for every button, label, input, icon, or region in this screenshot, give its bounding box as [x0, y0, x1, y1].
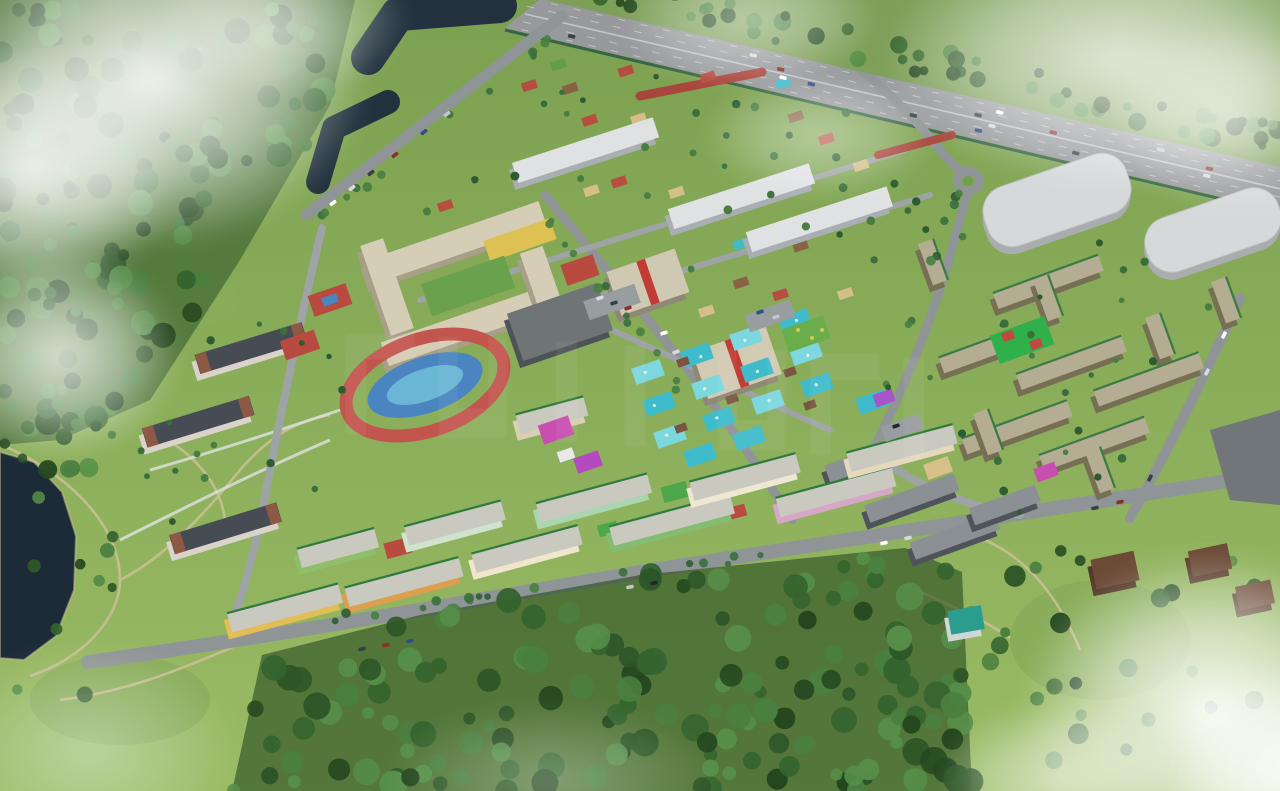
tree [1070, 677, 1083, 690]
tree [280, 327, 288, 335]
tree [463, 713, 475, 725]
tree [306, 54, 326, 74]
tree [798, 611, 817, 630]
tree [898, 55, 908, 65]
tree [299, 340, 305, 346]
tree [890, 36, 908, 54]
tree [725, 625, 752, 652]
tree [1119, 659, 1138, 678]
tree [431, 596, 441, 606]
tree [1157, 101, 1167, 111]
tree [558, 602, 580, 624]
tree [30, 3, 45, 18]
tree [37, 193, 50, 206]
pool-detail [795, 319, 798, 322]
tree [338, 386, 346, 394]
tree [64, 57, 88, 81]
tree [912, 197, 920, 205]
tree [483, 720, 495, 732]
tree [913, 50, 925, 62]
tree [885, 384, 891, 390]
tree [69, 162, 81, 174]
tree [1149, 357, 1157, 365]
scene-canvas [0, 0, 1280, 791]
tree [715, 611, 729, 625]
tree [958, 429, 966, 437]
pool-detail [743, 339, 746, 342]
tree [580, 97, 586, 103]
tree [697, 732, 717, 752]
tree [593, 283, 603, 293]
tree [631, 729, 659, 757]
tree [292, 717, 315, 740]
tree [716, 729, 737, 750]
tree [1030, 561, 1042, 573]
tree [108, 431, 116, 439]
tree [308, 15, 320, 27]
tree [541, 100, 548, 107]
tree [1113, 358, 1118, 363]
tree [867, 216, 876, 225]
tree [730, 552, 739, 561]
tree [1205, 303, 1212, 310]
tree [499, 706, 514, 721]
tree [577, 175, 584, 182]
tree [720, 8, 735, 23]
tree [564, 111, 570, 117]
tree [98, 112, 123, 137]
tree [266, 459, 274, 467]
tree [1046, 678, 1062, 694]
tree [28, 559, 41, 572]
tree [842, 108, 851, 117]
tree [702, 14, 716, 28]
tree [1151, 589, 1170, 608]
tree [169, 518, 176, 525]
tree [36, 206, 47, 217]
tree [28, 288, 42, 302]
tree [903, 768, 927, 791]
tree [166, 420, 172, 426]
tree [991, 637, 1009, 655]
tree [741, 672, 763, 694]
tree [732, 100, 740, 108]
tree [640, 648, 667, 675]
tree [655, 703, 678, 726]
tree [720, 664, 743, 687]
tree [56, 385, 67, 396]
tree [970, 71, 986, 87]
tree [362, 707, 374, 719]
tree [1205, 701, 1218, 714]
tree [994, 457, 1002, 465]
tree [765, 604, 787, 626]
tree [673, 377, 681, 385]
tree [1029, 353, 1035, 359]
tree [128, 190, 154, 216]
tree [955, 190, 963, 198]
tree [775, 656, 789, 670]
tree [826, 591, 841, 606]
tree [100, 543, 115, 558]
tree [972, 56, 981, 65]
tree [423, 207, 431, 215]
tree [21, 421, 35, 435]
tree [528, 47, 537, 56]
tree [584, 764, 607, 787]
tree [779, 756, 800, 777]
tree [1178, 125, 1191, 138]
tree [12, 3, 25, 16]
tree [265, 124, 285, 144]
tree [772, 37, 780, 45]
tree [134, 169, 159, 194]
tree [726, 703, 751, 728]
tree [266, 142, 291, 167]
tree [115, 138, 141, 164]
tree [890, 180, 898, 188]
tree [43, 1, 63, 21]
tree [173, 226, 192, 245]
tree [722, 163, 728, 169]
tree [0, 220, 20, 241]
tree [686, 560, 693, 567]
tree [43, 298, 55, 310]
tree [1027, 331, 1034, 338]
tree [24, 255, 42, 273]
pool-detail [644, 371, 647, 374]
tree [953, 668, 968, 683]
tree [672, 386, 680, 394]
tree [767, 191, 775, 199]
tree [653, 349, 660, 356]
tree [1118, 454, 1127, 463]
tree [521, 605, 546, 630]
tree [60, 460, 78, 478]
tree [83, 35, 94, 46]
tree [64, 372, 81, 389]
tree [257, 321, 262, 326]
tree [1245, 691, 1264, 710]
tree [410, 721, 436, 747]
tree [539, 686, 564, 711]
tree [619, 568, 628, 577]
tree [195, 271, 210, 286]
tree [190, 165, 209, 184]
tree [108, 583, 117, 592]
tree [282, 116, 296, 130]
tree [1120, 743, 1132, 755]
tree [263, 735, 281, 753]
tree [38, 460, 57, 479]
tree [909, 66, 921, 78]
tree [109, 266, 133, 290]
tree [521, 646, 548, 673]
tree [496, 588, 521, 613]
tree [1017, 509, 1022, 514]
tree [281, 751, 303, 773]
tree [105, 392, 124, 411]
tree [362, 182, 372, 192]
tree [1195, 108, 1211, 124]
tree [261, 655, 287, 681]
tree [641, 143, 649, 151]
pool-detail [699, 355, 702, 358]
pool-detail [715, 416, 718, 419]
tree [338, 658, 357, 677]
tree [100, 58, 124, 82]
tree [440, 607, 460, 627]
pool-detail [653, 404, 656, 407]
tree [1034, 68, 1044, 78]
pool-detail [665, 434, 668, 437]
tree [757, 552, 763, 558]
tree [27, 131, 44, 148]
tree [70, 306, 81, 317]
tree [623, 319, 631, 327]
tree [897, 676, 919, 698]
tree [136, 222, 151, 237]
tree [59, 349, 78, 368]
tree [999, 487, 1008, 496]
tree [982, 653, 999, 670]
tree [850, 51, 866, 67]
tree [79, 458, 98, 477]
tree [690, 149, 697, 156]
tree [959, 233, 967, 241]
tree [786, 132, 793, 139]
tree [5, 398, 19, 412]
tree [844, 766, 864, 786]
tree [302, 88, 326, 112]
tree [459, 731, 483, 755]
tree [41, 383, 56, 398]
tree [725, 561, 731, 567]
tree [166, 30, 189, 53]
tree [802, 222, 810, 230]
tree [84, 262, 101, 279]
tree [1119, 297, 1125, 303]
tree [32, 491, 45, 504]
tree [854, 602, 873, 621]
tree [3, 103, 17, 117]
tree [1063, 449, 1069, 455]
tree [12, 684, 22, 694]
tree [343, 194, 350, 201]
tree [836, 231, 842, 237]
tree [940, 692, 966, 718]
tree [386, 617, 406, 637]
tree [937, 563, 954, 580]
tree [821, 670, 840, 689]
tree [926, 256, 936, 266]
tree [1055, 545, 1067, 557]
tree [118, 249, 130, 261]
tree [610, 708, 627, 725]
tree [195, 190, 212, 207]
tree [839, 183, 848, 192]
tree [644, 192, 651, 199]
tree [867, 571, 884, 588]
tree [201, 474, 209, 482]
tree [335, 683, 359, 707]
tree [922, 226, 929, 233]
tree [172, 468, 178, 474]
tree [1074, 103, 1088, 117]
tree [623, 312, 630, 319]
tree [87, 174, 112, 199]
tree [136, 346, 153, 363]
tree [753, 698, 778, 723]
tree [45, 287, 57, 299]
tree [570, 250, 578, 258]
tree [904, 207, 911, 214]
tree [824, 644, 843, 663]
tree [138, 447, 145, 454]
tree [321, 209, 329, 217]
tree [122, 368, 141, 387]
tree [950, 200, 959, 209]
tree [241, 155, 252, 166]
tree [13, 354, 33, 374]
tree [491, 742, 510, 761]
tree [312, 486, 318, 492]
tree [298, 137, 312, 151]
tree [377, 171, 385, 179]
tree [792, 591, 810, 609]
tree [52, 397, 65, 410]
playground-dot [820, 328, 824, 332]
tree [90, 420, 101, 431]
tree [1140, 258, 1148, 266]
tree [144, 473, 150, 479]
tree [723, 205, 732, 214]
tree [341, 608, 351, 618]
tree [708, 704, 722, 718]
tree [93, 575, 105, 587]
tree [794, 679, 814, 699]
tree [942, 728, 964, 750]
tree [837, 560, 850, 573]
tree [420, 605, 427, 612]
tree [688, 265, 695, 272]
tree [1120, 266, 1127, 273]
tree [1075, 427, 1083, 435]
tree [510, 172, 519, 181]
tree [415, 662, 436, 683]
roundabout-island [963, 176, 973, 186]
tree [602, 282, 610, 290]
tree [1141, 712, 1155, 726]
tree [920, 747, 948, 775]
tree [1258, 118, 1268, 128]
tree [429, 755, 447, 773]
tree [107, 531, 118, 542]
tree [359, 658, 381, 680]
tree [799, 735, 815, 751]
tree [743, 752, 761, 770]
aerial-masterplan-render [0, 0, 1280, 791]
pool-detail [815, 383, 818, 386]
tree [639, 568, 662, 591]
tree [780, 11, 790, 21]
tree [927, 375, 933, 381]
tree [723, 132, 730, 139]
tree [1000, 319, 1009, 328]
tree [151, 323, 176, 348]
tree [326, 354, 331, 359]
tree [194, 451, 201, 458]
tree [177, 270, 196, 289]
tree [44, 238, 57, 251]
tree [1062, 389, 1069, 396]
tree [401, 768, 419, 786]
tree [707, 568, 729, 590]
tree [722, 766, 736, 780]
tree [500, 760, 519, 779]
tree [225, 18, 251, 44]
tree [831, 707, 857, 733]
tree [275, 53, 294, 72]
tree [75, 559, 86, 570]
tree [182, 303, 202, 323]
tree [181, 123, 192, 134]
tree [486, 88, 493, 95]
tree [751, 103, 760, 112]
tree [382, 715, 398, 731]
tree [353, 759, 380, 786]
tree [18, 453, 27, 462]
tree [1226, 118, 1244, 136]
tree [769, 733, 789, 753]
tree [855, 662, 869, 676]
tree [471, 176, 478, 183]
tree [925, 714, 941, 730]
tree [1075, 710, 1086, 721]
tree [56, 132, 70, 146]
tree [77, 686, 93, 702]
tree [842, 687, 855, 700]
tree [67, 225, 80, 238]
tree [687, 571, 705, 589]
playground-dot [810, 336, 814, 340]
pool-detail [703, 387, 706, 390]
tree [46, 146, 57, 157]
playground-dot [796, 328, 800, 332]
tree [1268, 120, 1278, 130]
tree [608, 748, 625, 765]
tree [1199, 128, 1215, 144]
tree [887, 625, 912, 650]
tree [299, 26, 315, 42]
tree [1045, 751, 1063, 769]
tree [477, 668, 501, 692]
tree [746, 13, 762, 29]
tree [453, 770, 468, 785]
tree [38, 23, 61, 46]
tree [71, 285, 83, 297]
tree [400, 743, 415, 758]
tree [63, 181, 75, 193]
tree [830, 768, 842, 780]
tree [303, 692, 330, 719]
tree [1037, 294, 1042, 299]
tree [1030, 692, 1044, 706]
tree [559, 90, 564, 95]
tree [636, 327, 645, 336]
tree [902, 716, 920, 734]
tree [476, 593, 482, 599]
